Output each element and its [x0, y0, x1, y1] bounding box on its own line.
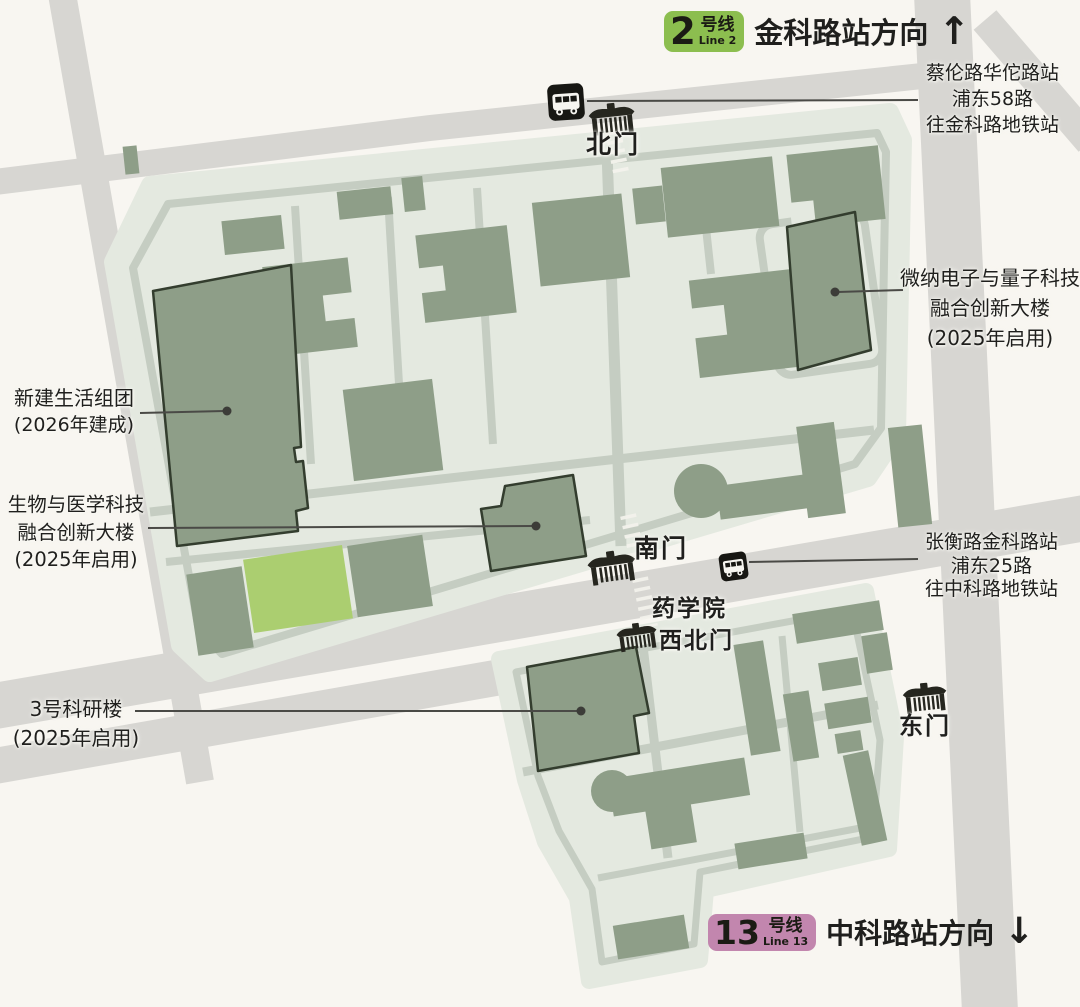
- up-arrow-icon: ↑: [938, 12, 970, 50]
- line2-suffix: 号线: [701, 17, 735, 34]
- line2-sub: Line 2: [699, 35, 737, 46]
- line13-number: 13: [714, 916, 760, 949]
- building: [337, 186, 394, 219]
- line13-suffix: 号线: [769, 918, 803, 935]
- bus-stop-north-icon: [547, 83, 586, 122]
- building: [413, 225, 516, 323]
- lab3-label: 3号科研楼 (2025年启用): [2, 695, 150, 753]
- building-highlight-green: [243, 545, 353, 633]
- micro-quantum-label: 微纳电子与量子科技 融合创新大楼 (2025年启用): [898, 263, 1080, 353]
- building: [645, 803, 697, 850]
- east-gate-icon: [902, 681, 949, 715]
- biomed-label: 生物与医学科技 融合创新大楼 (2025年启用): [0, 491, 152, 574]
- building: [186, 566, 254, 655]
- bus-stop-north-label: 蔡伦路华佗路站 浦东58路 往金科路地铁站: [905, 60, 1080, 138]
- map-canvas: [0, 0, 1080, 1007]
- building-lab3: [527, 647, 649, 771]
- line2-direction-text: 金科路站方向: [754, 10, 928, 52]
- bus-stop-south-label: 张衡路金科路站 浦东25路 往中科路地铁站: [903, 531, 1080, 602]
- building: [221, 215, 284, 255]
- line13-direction-text: 中科路站方向: [826, 912, 994, 952]
- building: [401, 176, 425, 212]
- south-gate-label: 南门: [634, 533, 688, 565]
- building: [835, 730, 864, 754]
- line2-direction-header: 2 号线 Line 2 金科路站方向 ↑: [664, 10, 970, 52]
- building: [661, 156, 780, 237]
- building: [343, 379, 444, 481]
- building-residential-cluster: [153, 265, 308, 546]
- east-road: [942, 0, 990, 1007]
- east-gate-label: 东门: [899, 711, 951, 742]
- line13-badge: 13 号线 Line 13: [708, 914, 816, 951]
- bus-stop-south-icon: [718, 551, 749, 582]
- building: [347, 535, 433, 617]
- callout-bus-north: [587, 100, 918, 101]
- line13-direction-footer: 13 号线 Line 13 中科路站方向 ↓: [708, 912, 1034, 952]
- north-gate-label: 北门: [586, 129, 640, 161]
- residential-label: 新建生活组团 (2026年建成): [0, 385, 148, 439]
- building: [532, 194, 630, 287]
- pharmacy-nw-gate-label: 药学院 西北门: [652, 593, 734, 657]
- line13-sub: Line 13: [763, 936, 808, 947]
- building: [123, 145, 140, 174]
- campus-map: 2 号线 Line 2 金科路站方向 ↑ 13 号线 Line 13 中科路站方…: [0, 0, 1080, 1007]
- line2-badge: 2 号线 Line 2: [664, 11, 744, 52]
- line2-number: 2: [670, 13, 696, 50]
- down-arrow-icon: ↓: [1004, 914, 1034, 950]
- building: [632, 186, 666, 225]
- building: [888, 424, 932, 527]
